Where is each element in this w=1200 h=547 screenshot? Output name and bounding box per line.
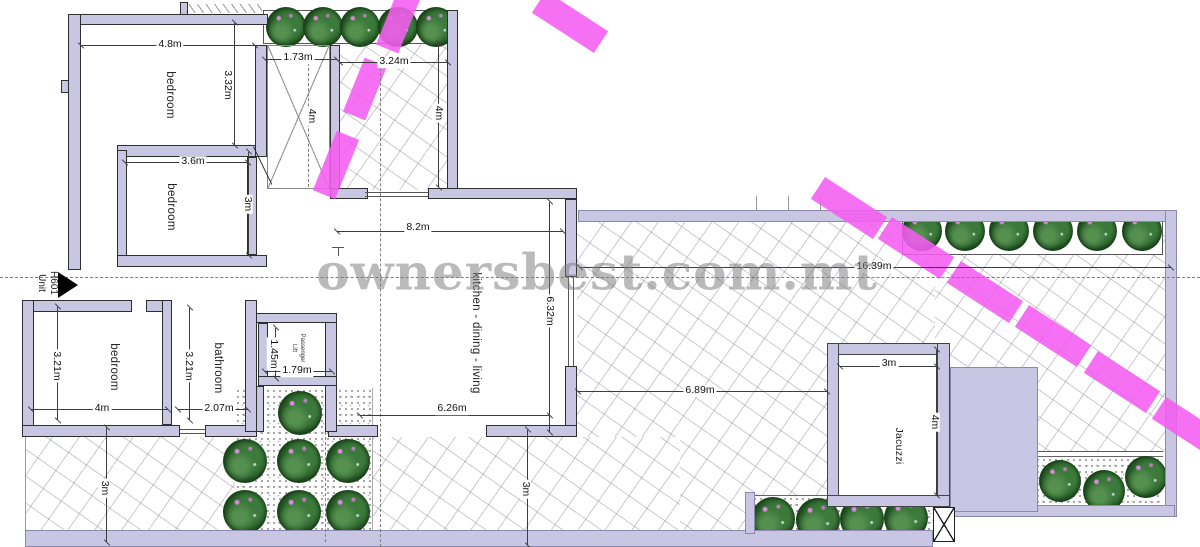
jacuzzi-wall	[827, 495, 950, 507]
dimension-line	[360, 415, 550, 416]
dimension-label: 3m	[241, 195, 253, 214]
wall	[117, 150, 127, 260]
wall	[428, 188, 577, 199]
wall	[258, 376, 337, 386]
centerline	[325, 432, 326, 542]
dimension-label: 3.6m	[179, 156, 206, 168]
tree-icon	[277, 439, 321, 483]
dimension-label: 2.07m	[202, 403, 235, 415]
tree-icon	[340, 7, 380, 47]
tree-icon	[1125, 456, 1167, 498]
tree-icon	[1039, 460, 1081, 502]
tree-icon	[223, 439, 267, 483]
wall	[68, 14, 81, 270]
tree-icon	[266, 7, 306, 47]
tree-icon	[326, 439, 370, 483]
wall	[61, 80, 69, 93]
dimension-label: 1.79m	[280, 365, 313, 377]
lift-label-line1: Passenger	[299, 334, 305, 363]
room-label-bathroom: bathroom	[212, 343, 224, 394]
wall	[245, 313, 337, 323]
wall	[565, 366, 577, 432]
tree-icon	[278, 391, 322, 435]
room-label-bedroom2: bedroom	[165, 183, 177, 231]
room-label-jacuzzi: Jacuzzi	[893, 427, 905, 464]
wall	[447, 10, 458, 190]
room-label-bedroom1: bedroom	[164, 71, 176, 119]
floor-plan: 4.8m 3.32m 1.73m 4m 3.24m 4m 8.2m 6.32m …	[0, 0, 1200, 547]
railing-hatch	[186, 4, 262, 13]
room-label-passenger-lift: Passenger Lift	[289, 334, 305, 363]
terrace-left-boundary	[25, 437, 26, 530]
dimension-line	[337, 231, 563, 232]
tree-icon	[223, 490, 267, 534]
tree-icon	[326, 490, 370, 534]
dimension-label: 3m	[519, 480, 531, 499]
wall	[255, 45, 267, 157]
wall	[245, 300, 257, 432]
dimension-label: 4m	[93, 403, 112, 415]
door-opening-line	[180, 433, 205, 434]
wall	[22, 425, 180, 437]
dimension-label: 4m	[928, 413, 940, 432]
dimension-label: 3.21m	[50, 349, 62, 382]
service-block	[950, 367, 1038, 512]
dimension-label: 3.24m	[377, 56, 410, 68]
column-marker	[933, 507, 955, 542]
dimension-label: 8.2m	[404, 222, 431, 234]
dimension-label: 1.45m	[267, 337, 279, 370]
dimension-label: 3.32m	[221, 68, 233, 101]
bottom-boundary-wall	[25, 530, 933, 547]
tick-mark	[756, 196, 757, 210]
door-opening-line	[365, 196, 428, 197]
dimension-label: 3m	[98, 479, 110, 498]
tick-mark	[788, 196, 789, 210]
lightwell-shaft	[267, 45, 330, 189]
dimension-label: 4m	[305, 107, 317, 126]
door-opening-line	[365, 192, 428, 193]
right-boundary-wall	[1165, 210, 1177, 517]
dimension-label: 6.89m	[683, 385, 716, 397]
dimension-label: 4m	[432, 104, 444, 123]
wall	[117, 255, 267, 267]
door-opening-line	[180, 429, 205, 430]
dimension-label: 3m	[880, 358, 899, 370]
centerline	[380, 58, 381, 547]
tree-icon	[303, 7, 343, 47]
room-label-bedroom3: bedroom	[108, 343, 120, 391]
dimension-label: 1.73m	[281, 52, 314, 64]
highlight-marker	[532, 0, 608, 53]
wall	[68, 14, 268, 25]
unit-label: H601 Unit	[25, 263, 59, 303]
planter-edge	[745, 492, 755, 534]
entry-arrow-icon	[58, 272, 78, 298]
unit-name: Unit	[35, 263, 47, 303]
lift-label-line2: Lift	[291, 344, 297, 352]
dimension-label: 3.21m	[182, 349, 194, 382]
dimension-label: 6.26m	[435, 403, 468, 415]
tree-icon	[277, 490, 321, 534]
watermark: ownersbest.com.mt	[316, 243, 878, 302]
jacuzzi-wall	[827, 343, 950, 355]
planter-right-topline	[1035, 451, 1163, 452]
dimension-label: 4.8m	[156, 39, 183, 51]
dimension-line	[234, 23, 235, 145]
wall	[486, 425, 577, 437]
wall	[162, 300, 172, 425]
jacuzzi-wall	[827, 343, 839, 507]
